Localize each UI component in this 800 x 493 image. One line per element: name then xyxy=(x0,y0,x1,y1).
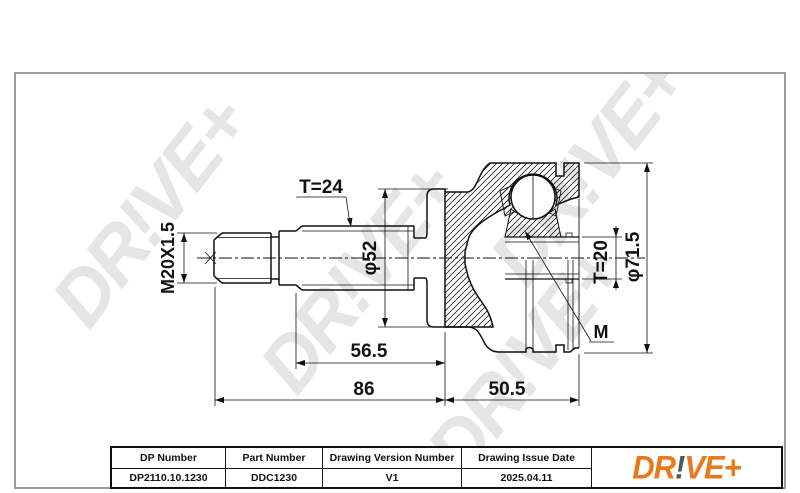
header-dp-number: DP Number xyxy=(112,448,226,469)
dim-50-5-label: 50.5 xyxy=(489,379,526,400)
spec-table: DP Number Part Number Drawing Version Nu… xyxy=(110,446,783,489)
technical-drawing: M20X1.5 T=24 φ52 T=20 φ71.5 M 56.5 86 50… xyxy=(0,0,800,493)
outer-spline-label: T=24 xyxy=(299,177,343,198)
inner-spline-label: T=20 xyxy=(591,240,612,284)
header-issue-date: Drawing Issue Date xyxy=(462,448,592,469)
housing-diameter-label: φ71.5 xyxy=(623,231,644,282)
body-diameter-label: φ52 xyxy=(360,241,381,276)
housing-section xyxy=(445,163,579,327)
header-drawing-version: Drawing Version Number xyxy=(323,448,462,469)
brand-logo-prefix: DR xyxy=(632,449,675,486)
value-part-number: DDC1230 xyxy=(226,469,323,487)
dim-86-label: 86 xyxy=(353,379,374,400)
value-dp-number: DP2110.10.1230 xyxy=(112,469,226,487)
dim-56-5-label: 56.5 xyxy=(351,341,388,362)
value-drawing-version: V1 xyxy=(323,469,462,487)
value-issue-date: 2025.04.11 xyxy=(462,469,592,487)
module-label: M xyxy=(594,322,609,342)
header-part-number: Part Number xyxy=(226,448,323,469)
brand-logo-suffix: VE+ xyxy=(684,449,740,486)
drawing-sheet: DR!VE+ DR!VE+ DR!VE+ DR!VE+ xyxy=(0,0,800,493)
dimension-lines xyxy=(177,163,653,406)
brand-logo: DR!VE+ xyxy=(592,448,781,487)
thread-spec-label: M20X1.5 xyxy=(158,222,178,294)
brand-logo-exclamation: ! xyxy=(675,449,684,486)
